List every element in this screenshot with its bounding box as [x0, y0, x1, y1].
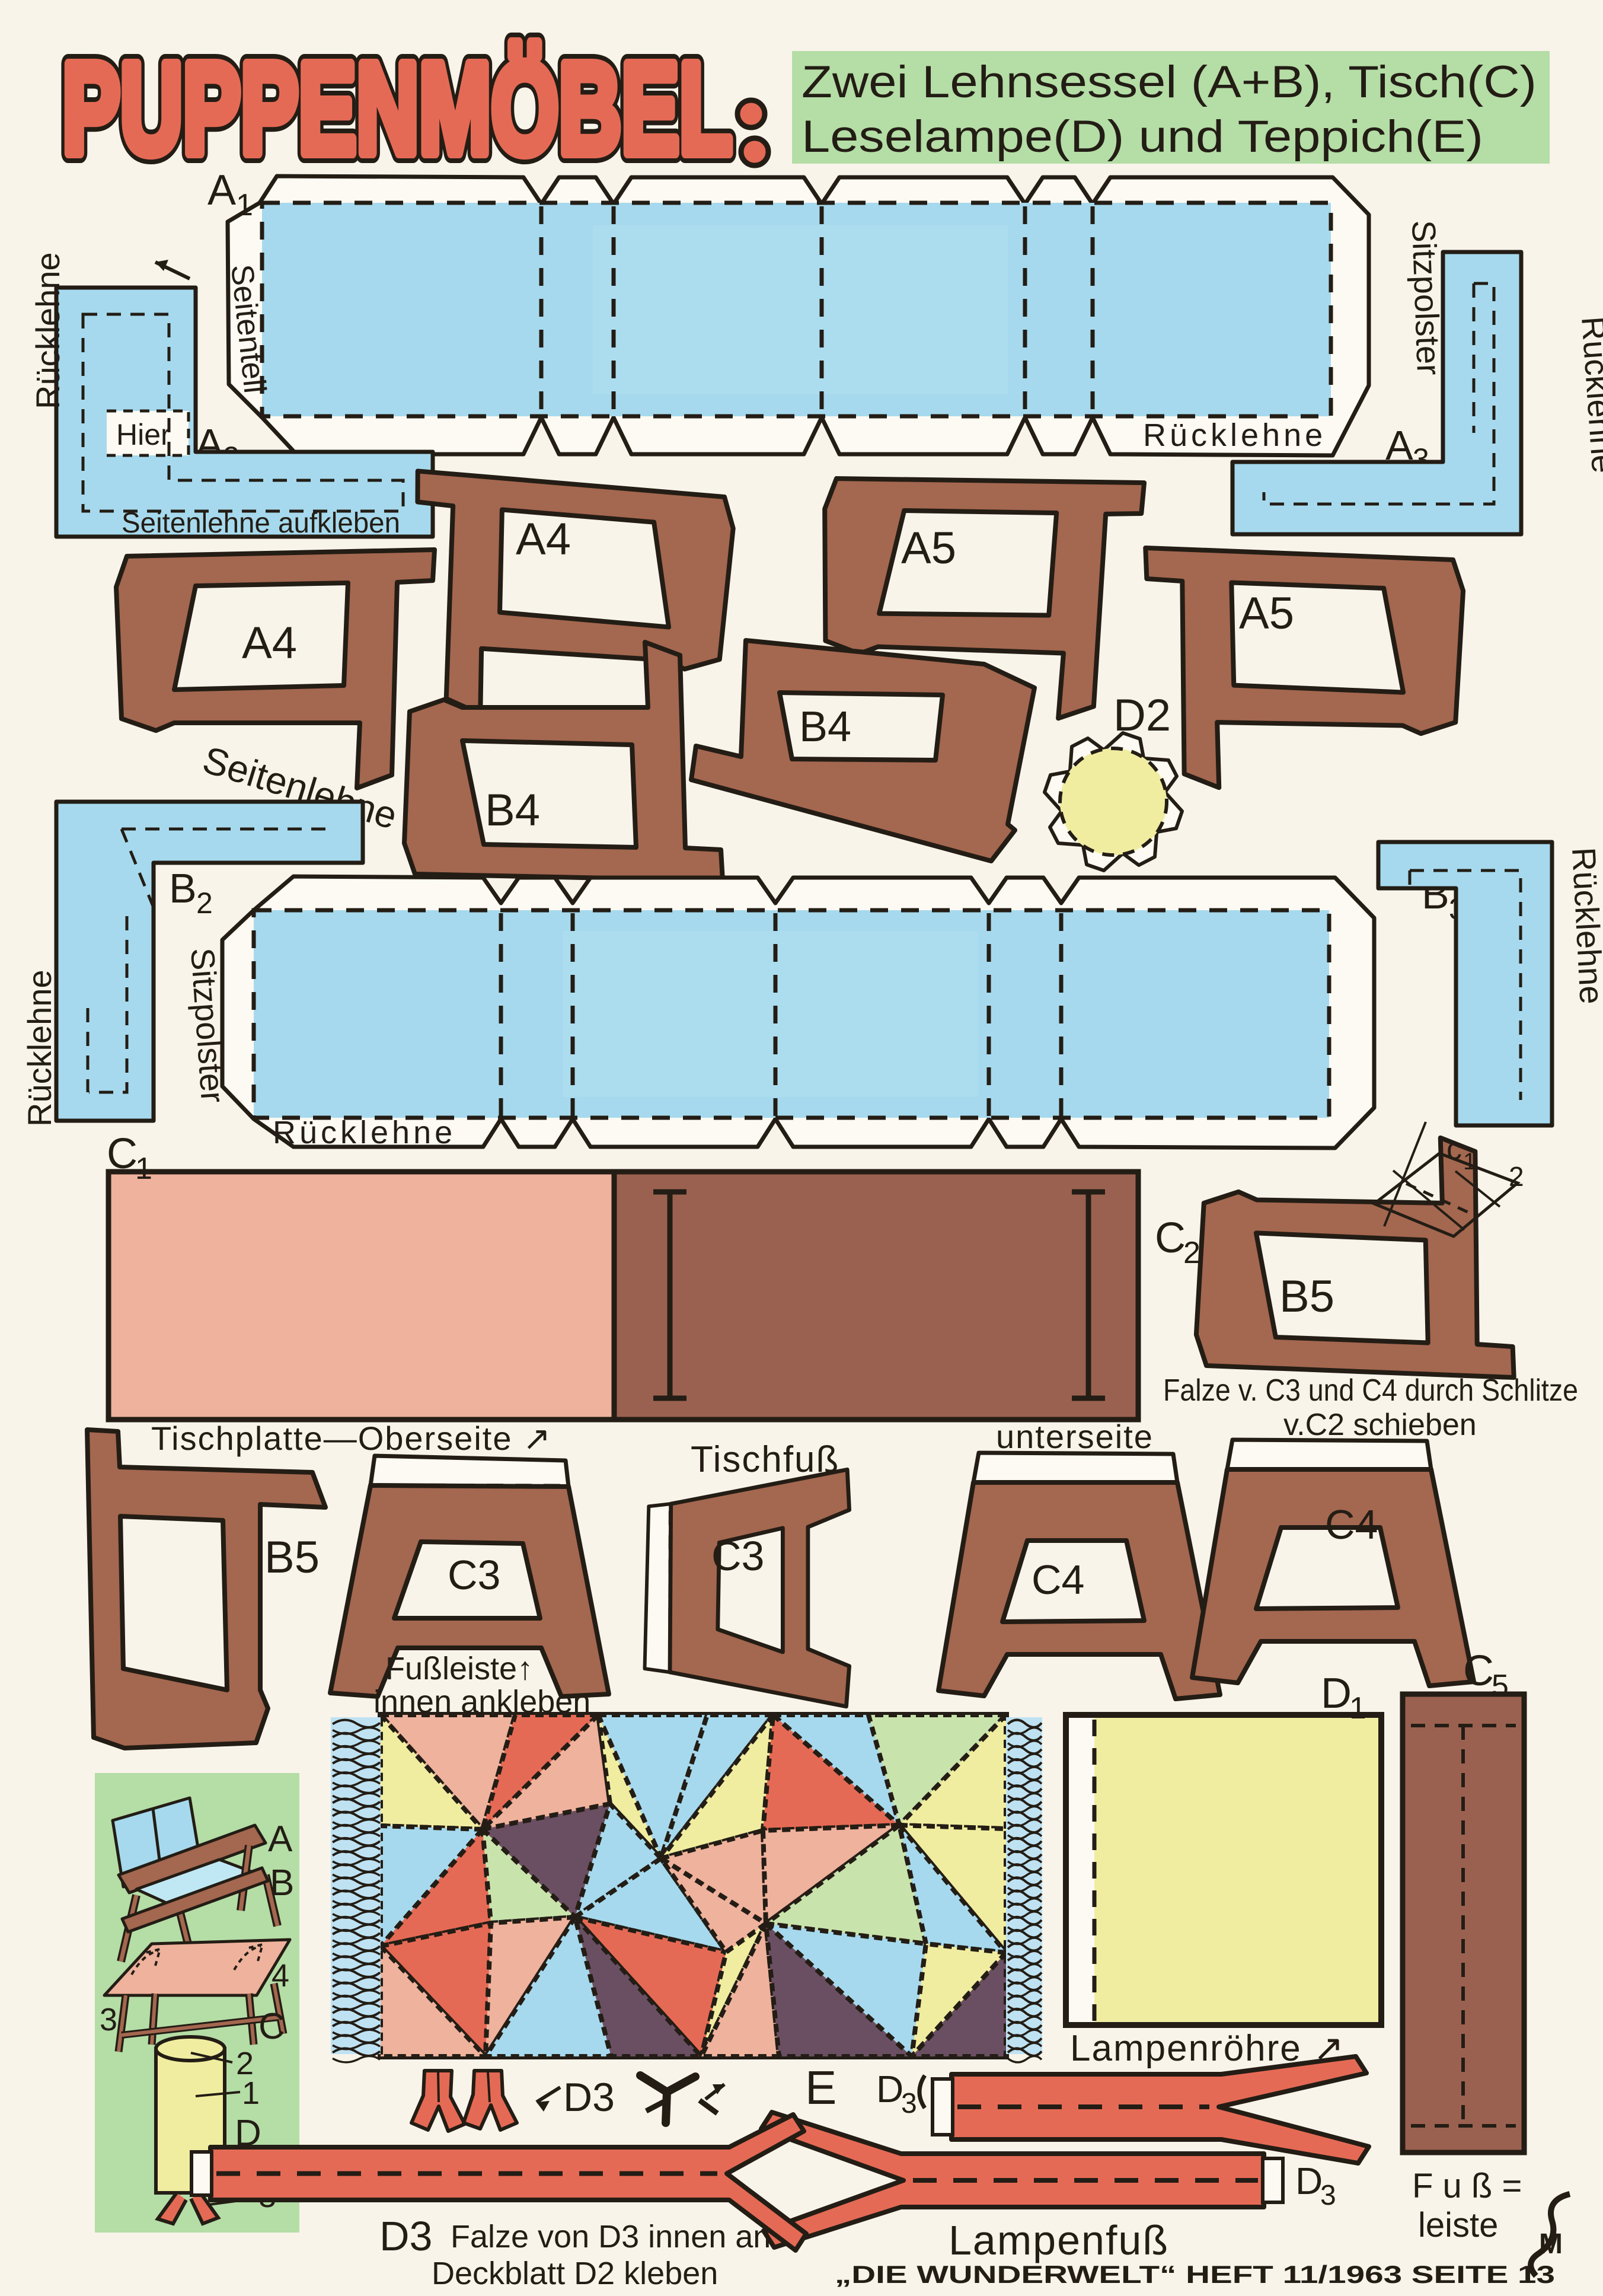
svg-text:3: 3 — [1320, 2180, 1336, 2211]
svg-text:C3: C3 — [711, 1533, 764, 1579]
svg-text:leiste: leiste — [1418, 2206, 1498, 2244]
svg-text:1: 1 — [135, 1152, 152, 1186]
svg-text:2: 2 — [1509, 1161, 1524, 1192]
svg-text:„DIE WUNDERWELT“ HEFT 11/1963: „DIE WUNDERWELT“ HEFT 11/1963 SEITE 13 — [835, 2260, 1555, 2288]
svg-text:A5: A5 — [1239, 588, 1294, 639]
svg-text:C: C — [1463, 1647, 1494, 1695]
svg-text:A4: A4 — [516, 514, 571, 565]
svg-text:2: 2 — [1183, 1236, 1200, 1270]
svg-text:Leselampe(D) und Teppich(E): Leselampe(D) und Teppich(E) — [801, 111, 1483, 162]
svg-text:Rücklehne: Rücklehne — [21, 970, 58, 1127]
svg-text:Hier: Hier — [116, 418, 171, 451]
svg-text:B4: B4 — [485, 785, 540, 836]
svg-text:C3: C3 — [448, 1552, 500, 1598]
svg-text:B4: B4 — [799, 703, 851, 751]
svg-text:E: E — [805, 2061, 836, 2114]
svg-text:C4: C4 — [1032, 1557, 1084, 1603]
svg-text:Seitenlehne aufkleben: Seitenlehne aufkleben — [122, 508, 400, 539]
svg-text:Rücklehne: Rücklehne — [1143, 417, 1326, 453]
svg-text:1: 1 — [1349, 1691, 1366, 1726]
svg-text:Lampenfuß: Lampenfuß — [949, 2217, 1169, 2263]
svg-text:2: 2 — [196, 886, 213, 920]
svg-text:Falze v. C3 und C4 durch Schli: Falze v. C3 und C4 durch Schlitze — [1163, 1373, 1578, 1408]
svg-text:A: A — [207, 167, 236, 214]
svg-text:Fußleiste↑: Fußleiste↑ — [385, 1651, 533, 1686]
svg-text:D2: D2 — [1113, 690, 1171, 741]
svg-text:5: 5 — [1492, 1669, 1509, 1703]
svg-text:unterseite: unterseite — [996, 1418, 1154, 1455]
svg-text:F u ß =: F u ß = — [1412, 2167, 1522, 2205]
svg-text:D: D — [1321, 1670, 1352, 1717]
svg-text:1: 1 — [236, 188, 253, 222]
svg-text:Rücklehne: Rücklehne — [273, 1115, 456, 1150]
svg-text:B: B — [270, 1863, 294, 1903]
svg-text:C: C — [107, 1130, 138, 1178]
svg-text:Zwei Lehnsessel (A+B), Tisch(C: Zwei Lehnsessel (A+B), Tisch(C) — [801, 57, 1537, 107]
svg-text:Falze von D3 innen an: Falze von D3 innen an — [451, 2219, 771, 2254]
svg-text:A: A — [268, 1819, 293, 1860]
svg-text:Sitzpolster: Sitzpolster — [1405, 219, 1448, 375]
svg-text:B5: B5 — [264, 1532, 320, 1583]
svg-text:B5: B5 — [1279, 1271, 1334, 1322]
svg-text:D: D — [876, 2068, 903, 2110]
svg-text:Tischplatte—Oberseite ↗: Tischplatte—Oberseite ↗ — [151, 1420, 552, 1457]
svg-text:A5: A5 — [901, 523, 956, 573]
svg-text:D3: D3 — [563, 2075, 615, 2120]
svg-text:B: B — [169, 865, 197, 911]
svg-text:C: C — [258, 2006, 285, 2047]
svg-text:Rücklehne: Rücklehne — [29, 252, 66, 409]
svg-text:A4: A4 — [242, 618, 297, 668]
svg-text:1: 1 — [1463, 1149, 1476, 1175]
svg-text:3: 3 — [901, 2088, 917, 2119]
svg-text:c: c — [1446, 1132, 1462, 1166]
svg-text:v.C2 schieben: v.C2 schieben — [1283, 1408, 1477, 1442]
svg-text:D: D — [1295, 2160, 1323, 2202]
svg-text:3: 3 — [100, 2002, 117, 2037]
svg-text:Deckblatt D2 kleben: Deckblatt D2 kleben — [432, 2256, 718, 2291]
svg-text:M: M — [1539, 2228, 1563, 2260]
svg-text:C4: C4 — [1325, 1501, 1378, 1548]
svg-text:1: 1 — [242, 2075, 260, 2111]
svg-text:C: C — [1155, 1214, 1186, 1262]
svg-text:4: 4 — [272, 1958, 289, 1994]
svg-text:D3: D3 — [379, 2213, 432, 2259]
svg-text:PUPPENMÖBEL: PUPPENMÖBEL — [62, 37, 732, 181]
